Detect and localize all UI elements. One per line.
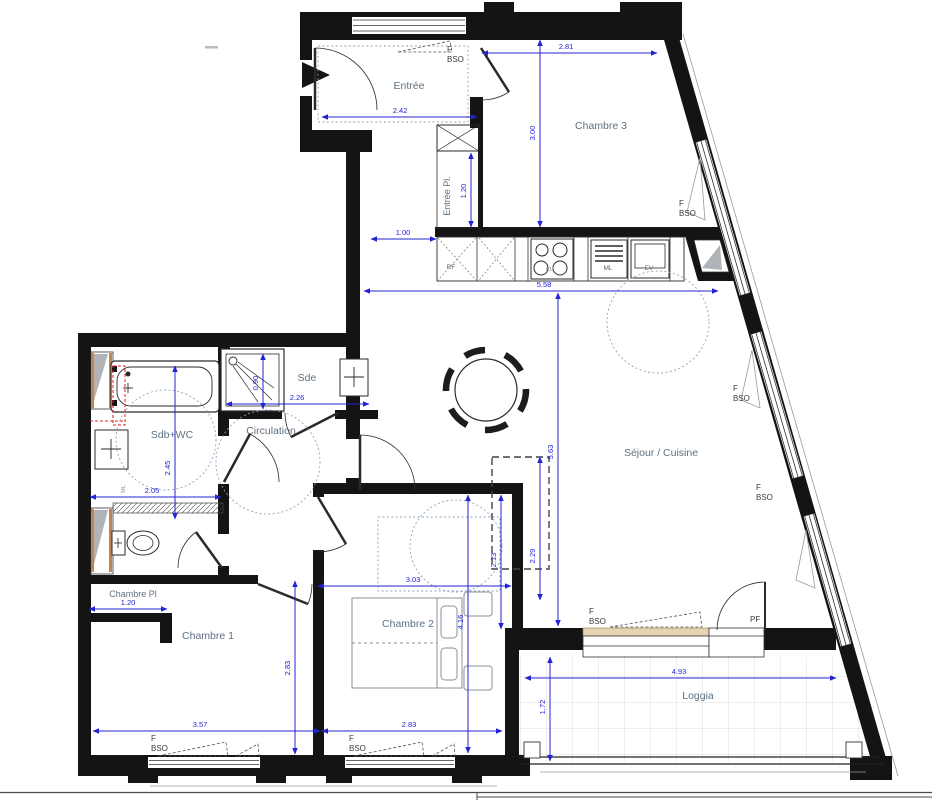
bathtub bbox=[111, 361, 219, 412]
door-window-pf bbox=[709, 628, 764, 657]
dim-loggia-width: 4.93 bbox=[672, 667, 687, 676]
room-label-sde: Sde bbox=[298, 372, 317, 384]
dishwasher-ml bbox=[591, 240, 627, 278]
dim-chambre2-top-width: 3.03 bbox=[406, 575, 421, 584]
door-chambre2 bbox=[318, 497, 346, 552]
washbasin-sdb bbox=[95, 430, 128, 469]
dim-chambre1-width: 3.57 bbox=[193, 720, 208, 729]
toilet bbox=[112, 531, 159, 555]
door-entry bbox=[315, 48, 377, 110]
label-bso-chambre1: BSO bbox=[151, 744, 168, 753]
label-laundry-ml: ML bbox=[121, 485, 127, 493]
floor-plan-page: 2.42 2.81 3.00 1.20 1.00 5.58 5.63 0.90 … bbox=[0, 0, 932, 800]
kitchen-counter bbox=[437, 237, 684, 281]
room-label-chambre-pl: Chambre Pl bbox=[109, 589, 157, 599]
loggia-floor bbox=[518, 657, 881, 762]
dim-chambre2-width: 2.83 bbox=[402, 720, 417, 729]
label-ev: EV bbox=[645, 265, 654, 272]
diagonal-windows bbox=[687, 140, 850, 646]
room-label-entree-pl: Entrée Pl. bbox=[442, 176, 452, 216]
dim-chambre1-height: 2.83 bbox=[283, 661, 292, 676]
room-label-chambre1: Chambre 1 bbox=[182, 630, 234, 642]
dim-sdb-width: 2.05 bbox=[145, 486, 160, 495]
label-bso-facade2: BSO bbox=[733, 394, 750, 403]
room-label-sdb: Sdb+WC bbox=[151, 429, 194, 441]
label-ml: ML bbox=[603, 265, 612, 272]
washbasin-sde bbox=[340, 359, 368, 396]
label-bso-chambre2: BSO bbox=[349, 744, 366, 753]
label-pf: PF bbox=[750, 615, 760, 624]
label-rf: RF bbox=[447, 264, 456, 271]
dim-sejour-nook: 2.29 bbox=[528, 549, 537, 564]
label-f-chambre1: F bbox=[151, 734, 156, 743]
room-label-chambre3: Chambre 3 bbox=[575, 120, 627, 132]
door-sejour bbox=[360, 435, 415, 490]
bed-chambre2 bbox=[352, 592, 492, 690]
label-cu: CU bbox=[546, 267, 554, 273]
door-chambre3 bbox=[481, 48, 509, 100]
dim-chambre2-height: 4.16 bbox=[456, 615, 465, 630]
dim-corridor-width: 1.00 bbox=[396, 228, 411, 237]
door-chambre1 bbox=[258, 584, 312, 604]
dim-kitchen-width: 5.58 bbox=[537, 280, 552, 289]
label-f-entree: F bbox=[447, 45, 452, 54]
dining-table bbox=[446, 350, 526, 430]
label-f-chambre2: F bbox=[349, 734, 354, 743]
cabinet-cross bbox=[479, 238, 514, 280]
room-label-entree: Entrée bbox=[394, 80, 425, 92]
dim-chambre3-width: 2.81 bbox=[559, 42, 574, 51]
room-label-chambre2: Chambre 2 bbox=[382, 618, 434, 630]
dim-entree-width: 2.42 bbox=[393, 106, 408, 115]
hatched-sill bbox=[113, 503, 223, 513]
label-f-facade3: F bbox=[756, 483, 761, 492]
dim-chambre-pl-width: 1.20 bbox=[121, 598, 136, 607]
label-bso-facade1: BSO bbox=[679, 209, 696, 218]
label-f-loggia: F bbox=[589, 607, 594, 616]
wardrobe-dashed bbox=[378, 517, 500, 591]
sink-ev bbox=[631, 240, 669, 278]
dim-chambre3-height: 3.00 bbox=[528, 126, 537, 141]
hob bbox=[531, 239, 573, 279]
room-label-circulation: Circulation bbox=[246, 425, 296, 437]
fridge-rf bbox=[438, 238, 476, 280]
floor-plan-svg: 2.42 2.81 3.00 1.20 1.00 5.58 5.63 0.90 … bbox=[0, 0, 932, 800]
dim-loggia-depth: 1.72 bbox=[538, 700, 547, 715]
label-f-facade1: F bbox=[679, 199, 684, 208]
dim-sejour-height: 5.63 bbox=[546, 445, 555, 460]
label-bso-facade3: BSO bbox=[756, 493, 773, 502]
dim-chambre2-partial: 2.13 bbox=[489, 553, 498, 568]
room-label-sejour: Séjour / Cuisine bbox=[624, 447, 698, 459]
door-sdb bbox=[224, 434, 279, 482]
dim-sdb-height: 2.45 bbox=[163, 461, 172, 476]
door-wc bbox=[178, 532, 222, 568]
label-bso-entree: BSO bbox=[447, 55, 464, 64]
label-bso-loggia: BSO bbox=[589, 617, 606, 626]
room-label-loggia: Loggia bbox=[682, 690, 714, 702]
label-f-facade2: F bbox=[733, 384, 738, 393]
dim-closet-height: 1.20 bbox=[459, 184, 468, 199]
dim-sde-width: 2.26 bbox=[290, 393, 305, 402]
dim-shower: 0.90 bbox=[251, 376, 260, 391]
